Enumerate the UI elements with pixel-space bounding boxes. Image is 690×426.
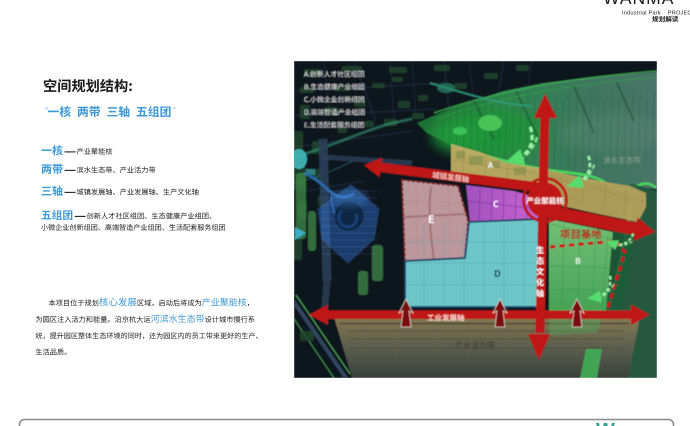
svg-text:Industrial Park PROJECT: Industrial Park PROJECT bbox=[622, 11, 690, 17]
svg-text:WANMA: WANMA bbox=[603, 0, 674, 8]
svg-text:W: W bbox=[596, 420, 615, 426]
